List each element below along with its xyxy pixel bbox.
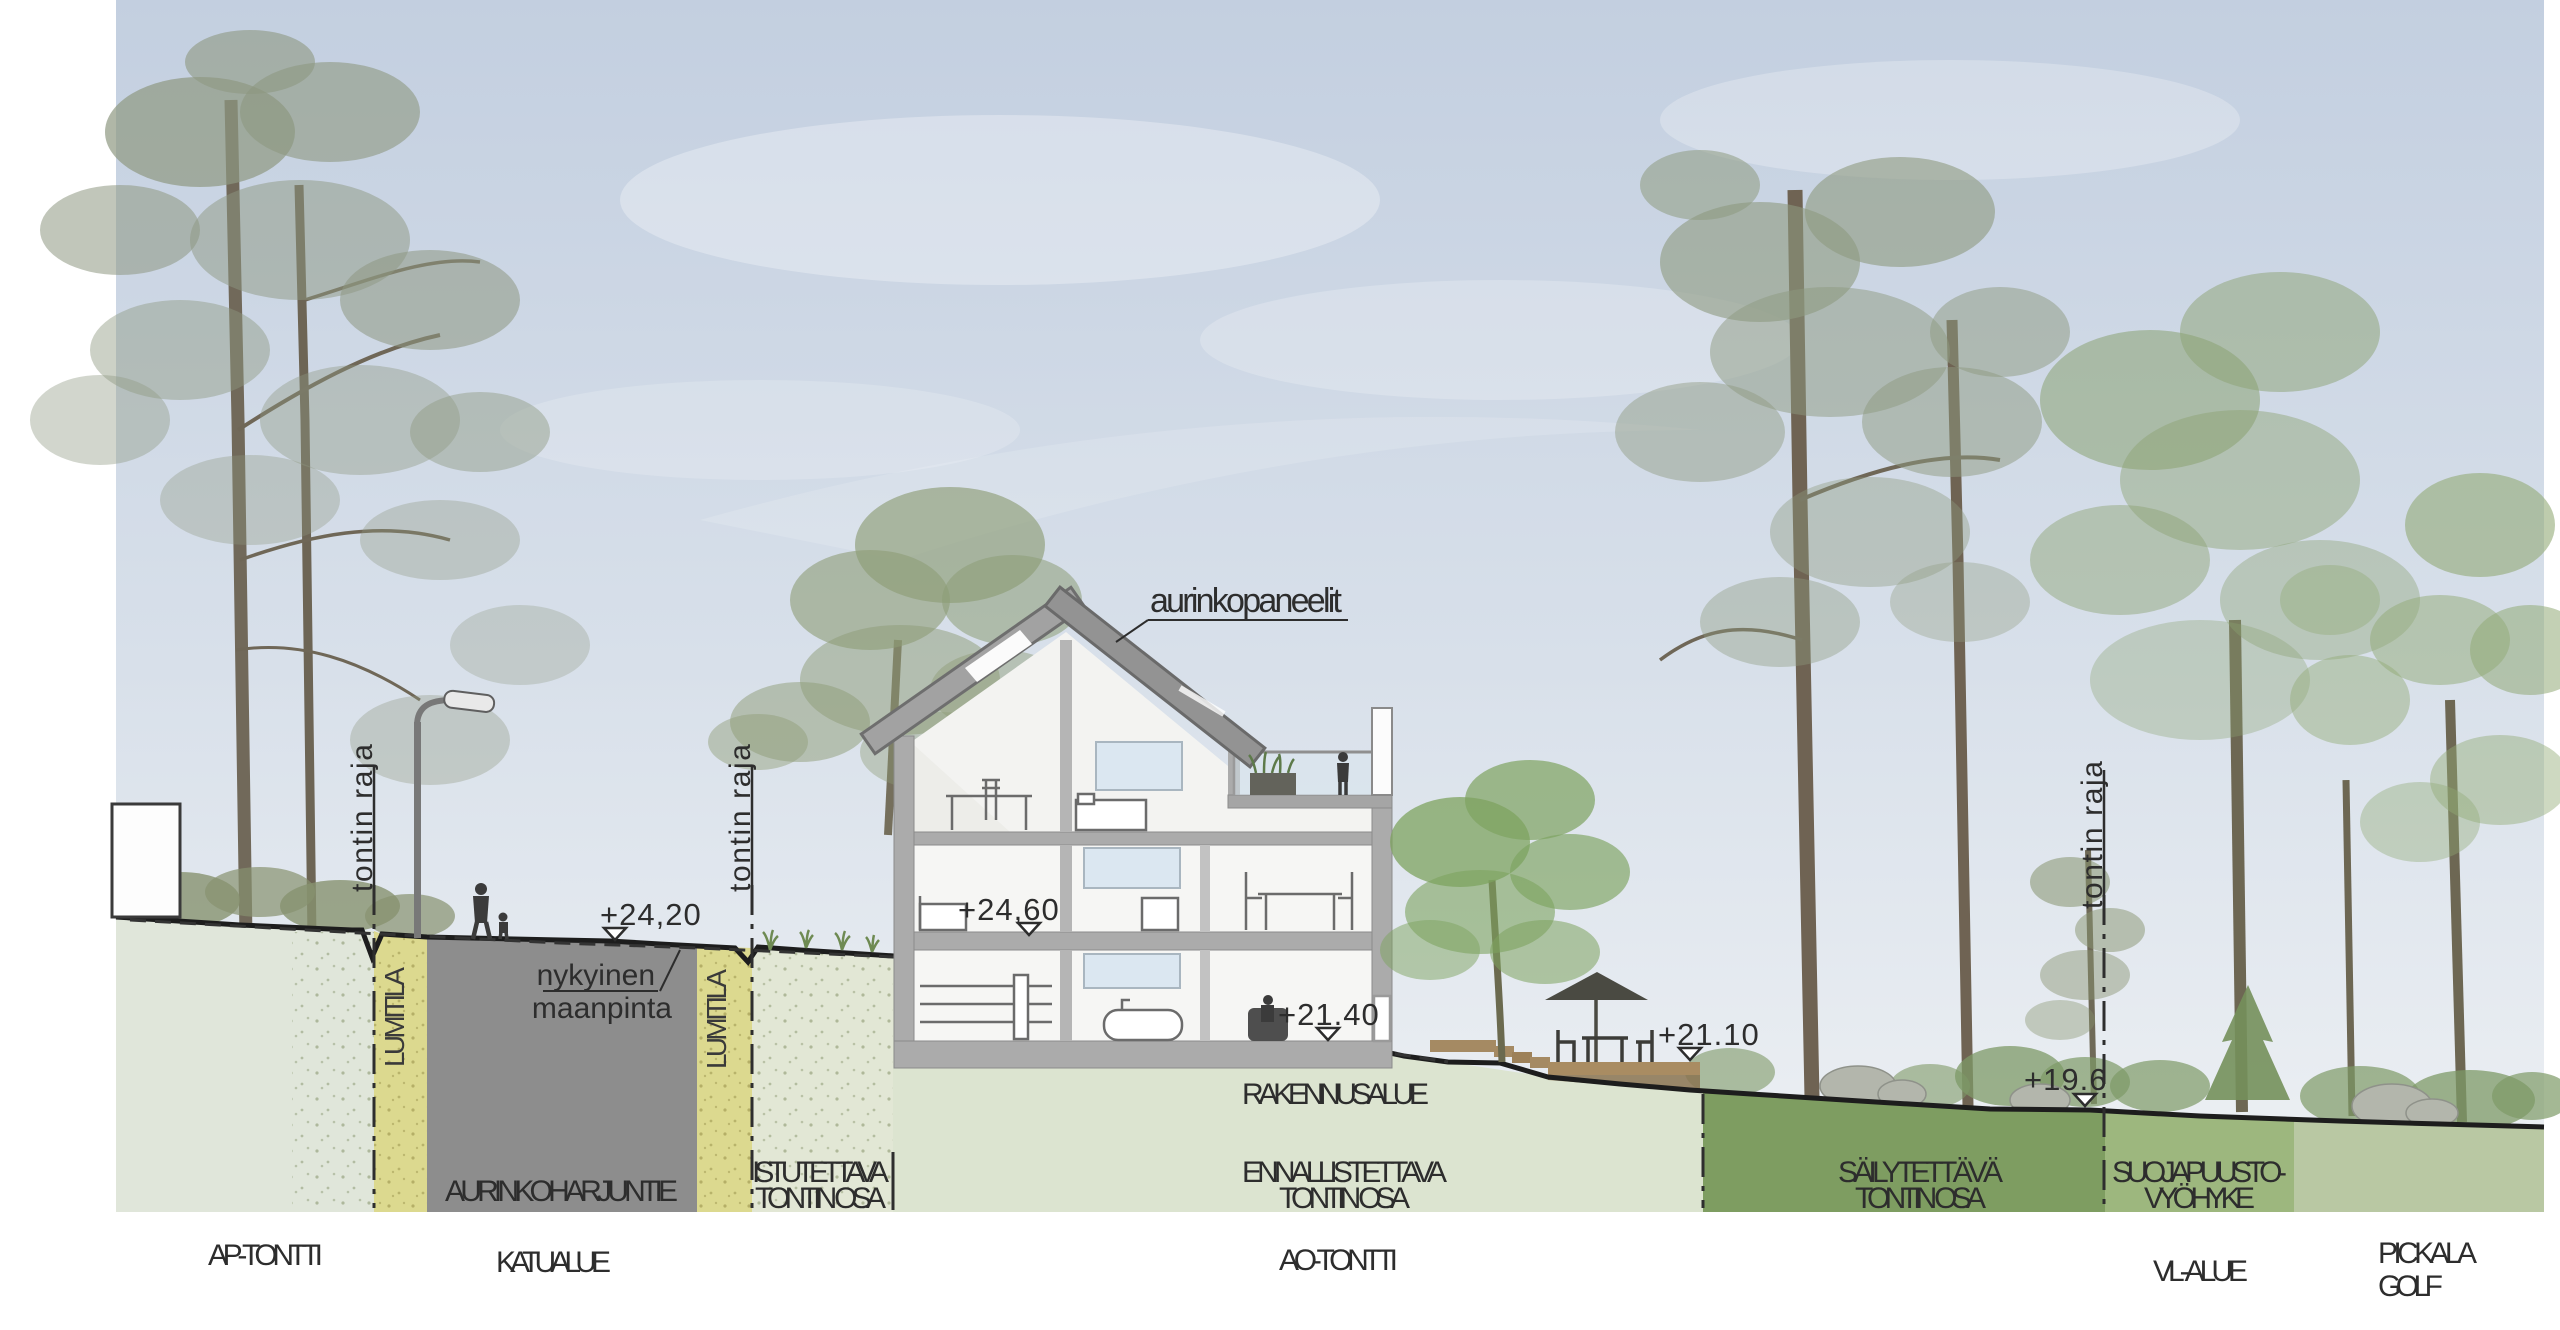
existing-ground-label-1: nykyinen (537, 959, 655, 992)
area-label-golf-2: GOLF (2378, 1270, 2444, 1303)
mid-floor-slab (894, 932, 1392, 950)
chimney (1372, 708, 1392, 795)
snow-space-label-right: LUMITILA (701, 967, 732, 1069)
left-wall (894, 736, 914, 1041)
area-label-street: KATUALUE (496, 1246, 612, 1279)
level-yard: +21.10 (1658, 1017, 1760, 1052)
street-name-label: AURINKOHARJUNTIE (445, 1175, 679, 1208)
neighbor-building (112, 804, 180, 917)
base-slab (894, 1041, 1392, 1068)
zone-buffer-label-2: VYÖHYKE (2144, 1182, 2256, 1215)
area-label-golf-1: PICKALA (2378, 1237, 2478, 1270)
level-upper-floor: +24,60 (958, 892, 1060, 927)
plot-boundary-label-left: tontin raja (346, 744, 379, 892)
area-label-ao: AO-TONTTI (1279, 1244, 1399, 1277)
zone-restored-label-2: TONTIN OSA (1279, 1182, 1411, 1215)
site-section-drawing: tontin raja tontin raja tontin raja LUMI… (0, 0, 2560, 1330)
area-label-ap: AP-TONTTI (208, 1239, 324, 1272)
snow-space-label-left: LUMITILA (379, 965, 410, 1067)
terrace-slab (1228, 795, 1392, 808)
attic-floor-slab (894, 832, 1392, 845)
building-area-label: RAKENNUSALUE (1242, 1078, 1430, 1111)
zone-band-golf (2294, 1119, 2544, 1212)
mid-window (1084, 848, 1180, 888)
center-divider-wall (1060, 640, 1072, 832)
solar-panels-label: aurinkopaneelit (1150, 582, 1343, 620)
zone-planted-label-2: TONTIN OSA (755, 1182, 887, 1215)
area-label-vl: VL-ALUE (2153, 1255, 2249, 1288)
existing-ground-label-2: maanpinta (532, 992, 672, 1025)
site-section-page: tontin raja tontin raja tontin raja LUMI… (0, 0, 2560, 1330)
level-forest-edge: +19.6 (2024, 1062, 2107, 1097)
plot-boundary-label-right: tontin raja (2076, 761, 2109, 909)
ground-window (1084, 954, 1180, 988)
zone-preserved-label-2: TONTIN OSA (1855, 1182, 1987, 1215)
plot-boundary-label-mid: tontin raja (724, 744, 757, 892)
attic-window (1096, 742, 1182, 790)
